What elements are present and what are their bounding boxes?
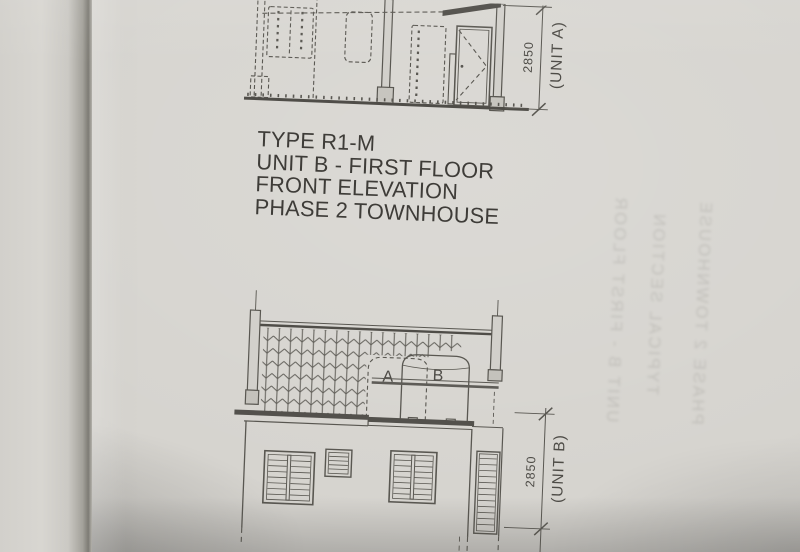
louver-window-4 xyxy=(474,451,500,534)
louver-window-3 xyxy=(389,451,437,504)
elevation-drawings-svg: 2850 (UNIT A) xyxy=(0,0,800,552)
bottom-unit-label: (UNIT B) xyxy=(549,434,569,503)
roof-tile-hatch xyxy=(260,328,461,420)
louver-window-1 xyxy=(263,451,315,505)
bottom-dimension-value: 2850 xyxy=(523,455,538,487)
water-tank-b xyxy=(400,354,470,423)
photo-of-drawing-page: 2850 (UNIT A) xyxy=(0,0,800,552)
top-elevation-drawing: 2850 (UNIT A) xyxy=(244,0,568,117)
water-tank-a-hidden xyxy=(366,357,427,420)
louver-window-2 xyxy=(325,449,352,477)
drawing-title-block: TYPE R1-M UNIT B - FIRST FLOOR FRONT ELE… xyxy=(254,128,502,228)
drawing-page: 2850 (UNIT A) xyxy=(0,0,800,552)
top-dimension-value: 2850 xyxy=(521,41,536,73)
top-unit-label: (UNIT A) xyxy=(548,21,568,90)
bottom-elevation-drawing: A B xyxy=(229,290,574,552)
tank-label-b: B xyxy=(432,367,443,384)
